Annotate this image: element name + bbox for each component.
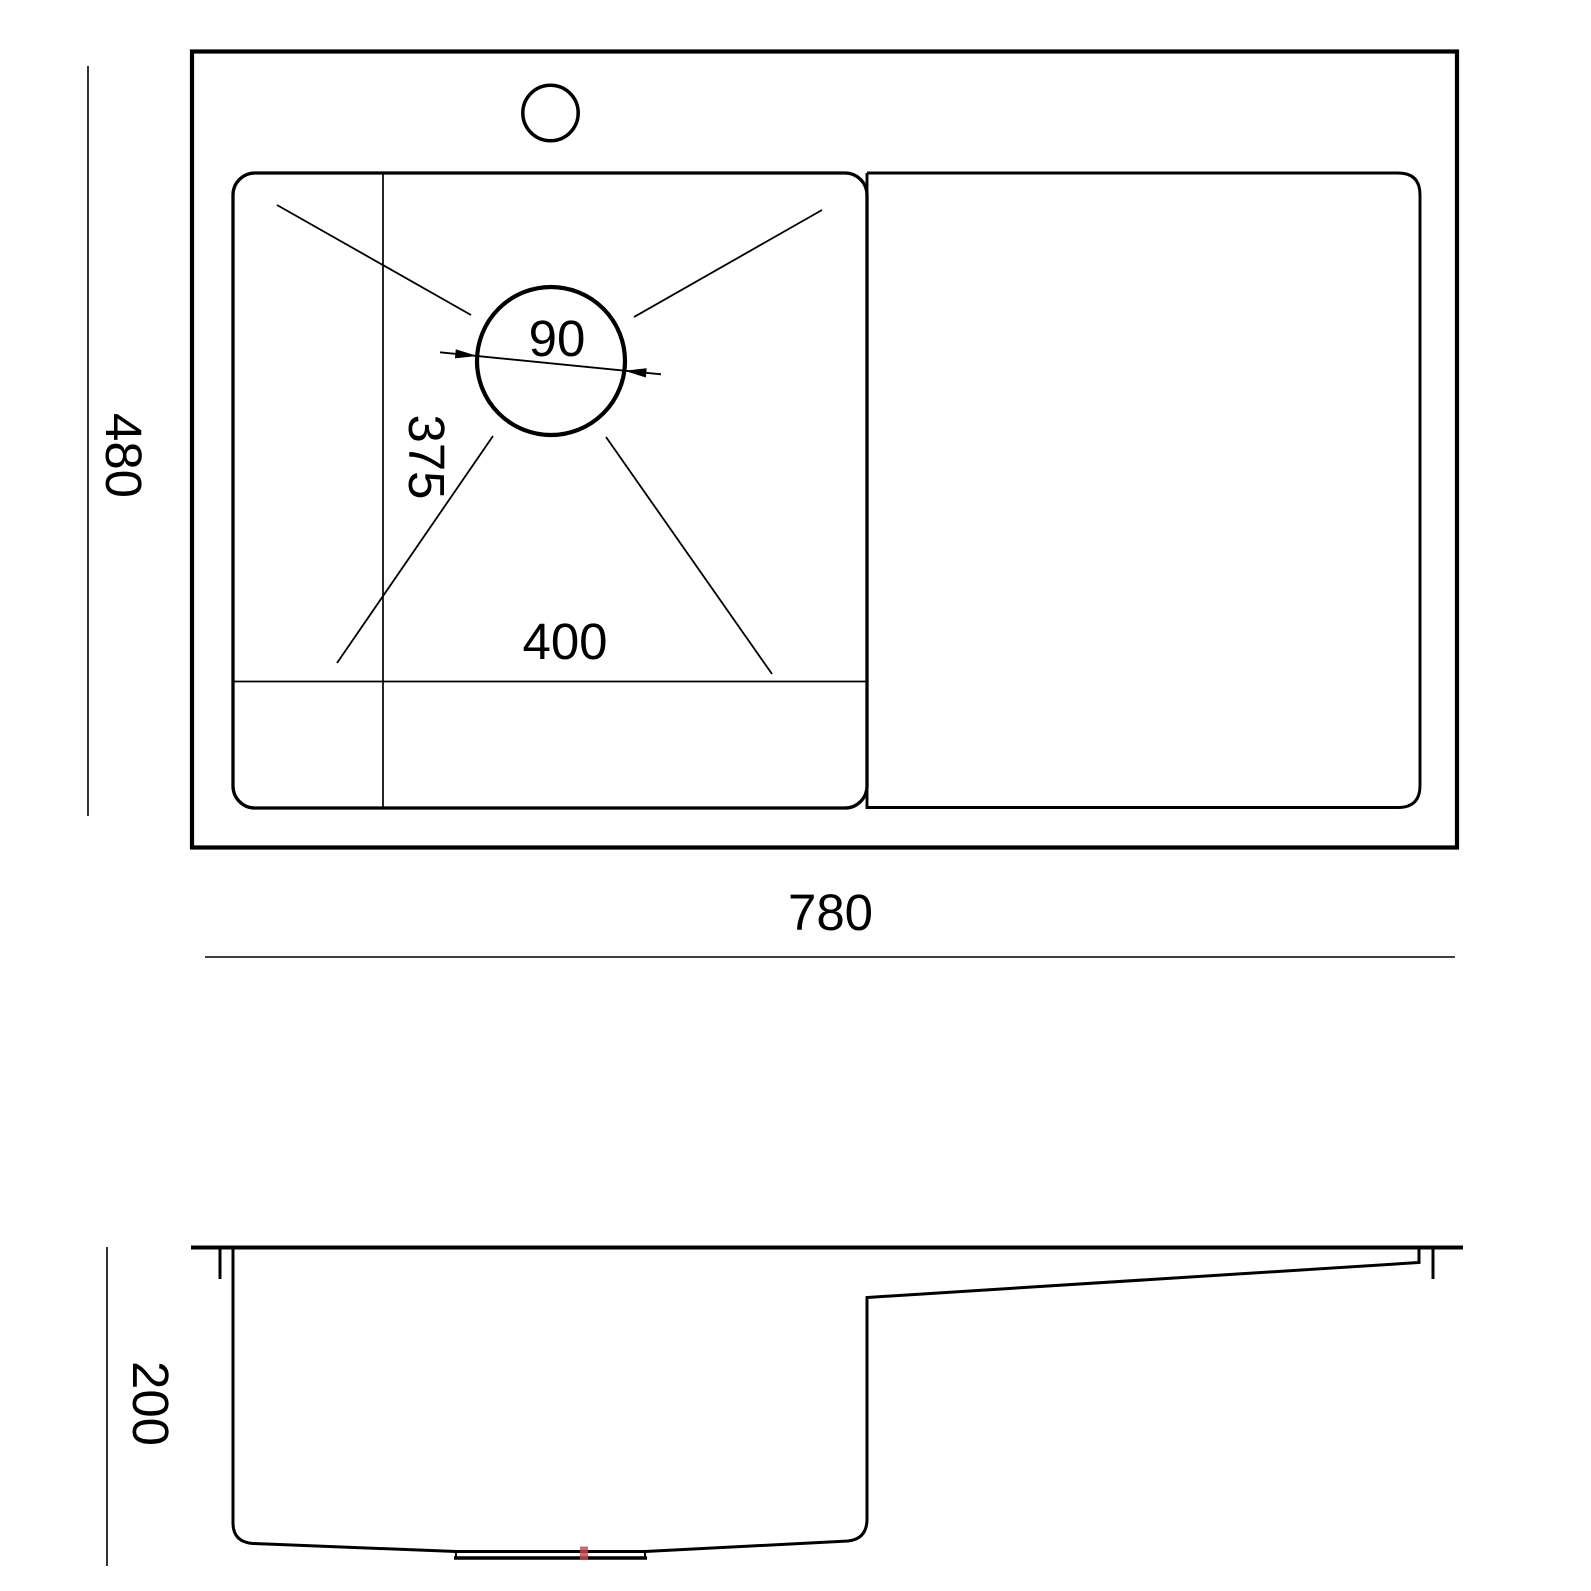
svg-text:200: 200 <box>122 1361 179 1446</box>
svg-text:375: 375 <box>398 414 455 499</box>
svg-text:90: 90 <box>529 310 586 367</box>
svg-text:400: 400 <box>522 613 607 670</box>
svg-text:780: 780 <box>788 884 873 941</box>
svg-text:480: 480 <box>95 413 152 498</box>
